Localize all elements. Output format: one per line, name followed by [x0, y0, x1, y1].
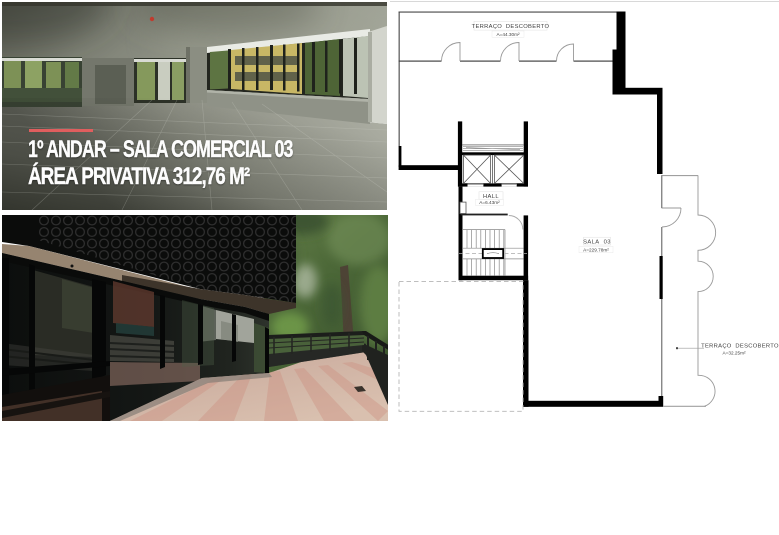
svg-text:A=32.25m²: A=32.25m² — [722, 351, 745, 356]
svg-text:SALA 03: SALA 03 — [583, 239, 611, 245]
svg-text:A=6.43m²: A=6.43m² — [479, 200, 500, 205]
svg-text:HALL: HALL — [483, 194, 499, 200]
svg-text:A=229.78m²: A=229.78m² — [583, 247, 609, 252]
svg-text:TERRAÇO DESCOBERTO: TERRAÇO DESCOBERTO — [701, 344, 779, 350]
svg-text:TERRAÇO DESCOBERTO: TERRAÇO DESCOBERTO — [472, 24, 550, 30]
svg-text:A=44.30m²: A=44.30m² — [496, 32, 519, 37]
